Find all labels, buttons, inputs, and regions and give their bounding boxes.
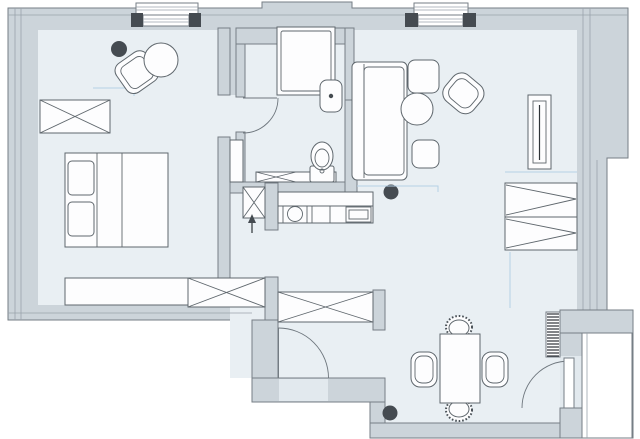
dresser-bedroom [65,278,188,305]
window-sill [136,3,198,15]
wall-entry-west [252,320,278,380]
plant-dining [383,406,398,421]
window-glass [143,15,189,26]
floor-plan-layers [8,2,633,438]
hall-cabinet [230,140,243,182]
pouf [412,140,439,168]
plant-bedroom [111,41,127,57]
wall-shaft-side [265,183,278,230]
toilet-bowl [311,142,333,170]
window-jamb [189,13,201,27]
window-jamb [405,13,418,27]
balcony-floor [582,333,632,438]
wall-balcony-side [560,408,582,438]
wall-bedroom-right-lower [218,137,230,278]
pouf [408,60,439,93]
wall-bathroom-left-upper [236,44,245,97]
radiator-hatch [547,314,559,356]
sofa [352,62,407,180]
wall-bedroom-right-upper [218,28,230,95]
pillow [68,161,94,195]
plant-hall [384,185,399,200]
window-sill [414,3,468,15]
sink-drain [329,94,333,98]
pillow [68,202,94,236]
side-table-bedroom [144,43,178,77]
dining-table [440,334,480,403]
wall-hall-column-b [373,290,385,330]
floor-plan-svg [0,0,640,439]
wall-dining-right-block [560,310,633,333]
entry-threshold [279,379,328,401]
balcony-door-leaf [564,358,574,408]
window-jamb [463,13,476,27]
window-glass [418,15,463,26]
floor-bedroom-doorway [218,95,230,137]
wardrobe-living [505,183,577,250]
wall-dining-bottom [370,423,582,438]
window-jamb [131,13,143,27]
floor-plan-page [0,0,640,439]
coffee-table [401,93,433,125]
